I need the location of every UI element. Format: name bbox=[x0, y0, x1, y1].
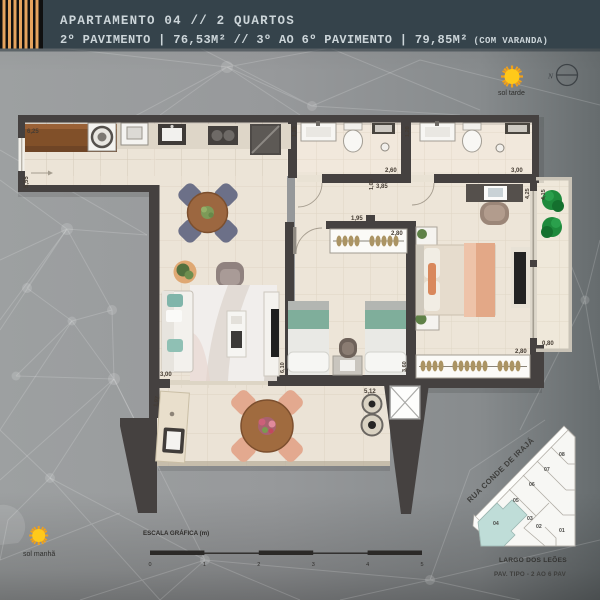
svg-text:05: 05 bbox=[513, 498, 519, 504]
svg-text:04: 04 bbox=[493, 521, 499, 527]
svg-text:01: 01 bbox=[559, 528, 565, 534]
svg-text:07: 07 bbox=[544, 467, 550, 473]
svg-text:02: 02 bbox=[536, 524, 542, 530]
svg-text:03: 03 bbox=[527, 516, 533, 522]
svg-text:PAV. TIPO - 2 AO 6 PAV: PAV. TIPO - 2 AO 6 PAV bbox=[494, 571, 567, 578]
svg-text:LARGO DOS LEÕES: LARGO DOS LEÕES bbox=[499, 555, 567, 564]
svg-text:6,25: 6,25 bbox=[27, 129, 39, 135]
svg-text:4,25: 4,25 bbox=[525, 188, 531, 199]
svg-text:1,95: 1,95 bbox=[351, 216, 363, 222]
svg-text:3,00: 3,00 bbox=[511, 168, 523, 174]
svg-text:4: 4 bbox=[366, 562, 369, 568]
svg-text:2º PAVIMENTO | 76,53M² // 3º A: 2º PAVIMENTO | 76,53M² // 3º AO 6º PAVIM… bbox=[60, 33, 548, 47]
svg-text:5,12: 5,12 bbox=[364, 389, 376, 395]
svg-text:N: N bbox=[547, 72, 554, 81]
svg-text:1: 1 bbox=[203, 562, 206, 568]
svg-text:2,80: 2,80 bbox=[515, 349, 527, 355]
svg-text:06: 06 bbox=[529, 482, 535, 488]
svg-text:1,20: 1,20 bbox=[405, 126, 411, 137]
svg-text:1,00: 1,00 bbox=[369, 179, 375, 190]
svg-text:3,60: 3,60 bbox=[402, 361, 408, 372]
svg-text:APARTAMENTO 04 // 2 QUARTOS: APARTAMENTO 04 // 2 QUARTOS bbox=[60, 14, 295, 28]
svg-text:0,80: 0,80 bbox=[542, 341, 554, 347]
svg-text:5,55: 5,55 bbox=[24, 176, 30, 188]
svg-text:sol tarde: sol tarde bbox=[498, 90, 525, 97]
svg-text:5: 5 bbox=[421, 562, 424, 568]
svg-text:0: 0 bbox=[149, 562, 152, 568]
svg-text:6,10: 6,10 bbox=[280, 362, 286, 373]
svg-text:sol manhã: sol manhã bbox=[23, 551, 55, 558]
svg-text:ESCALA GRÁFICA (m): ESCALA GRÁFICA (m) bbox=[143, 530, 209, 537]
svg-text:3: 3 bbox=[312, 562, 315, 568]
svg-text:1,20: 1,20 bbox=[292, 126, 298, 137]
svg-text:3,00: 3,00 bbox=[160, 372, 172, 378]
svg-text:08: 08 bbox=[559, 452, 565, 458]
svg-text:3,85: 3,85 bbox=[376, 184, 388, 190]
svg-text:2: 2 bbox=[257, 562, 260, 568]
svg-text:4,15: 4,15 bbox=[541, 189, 547, 200]
svg-text:2,80: 2,80 bbox=[391, 231, 403, 237]
svg-text:2,60: 2,60 bbox=[385, 168, 397, 174]
